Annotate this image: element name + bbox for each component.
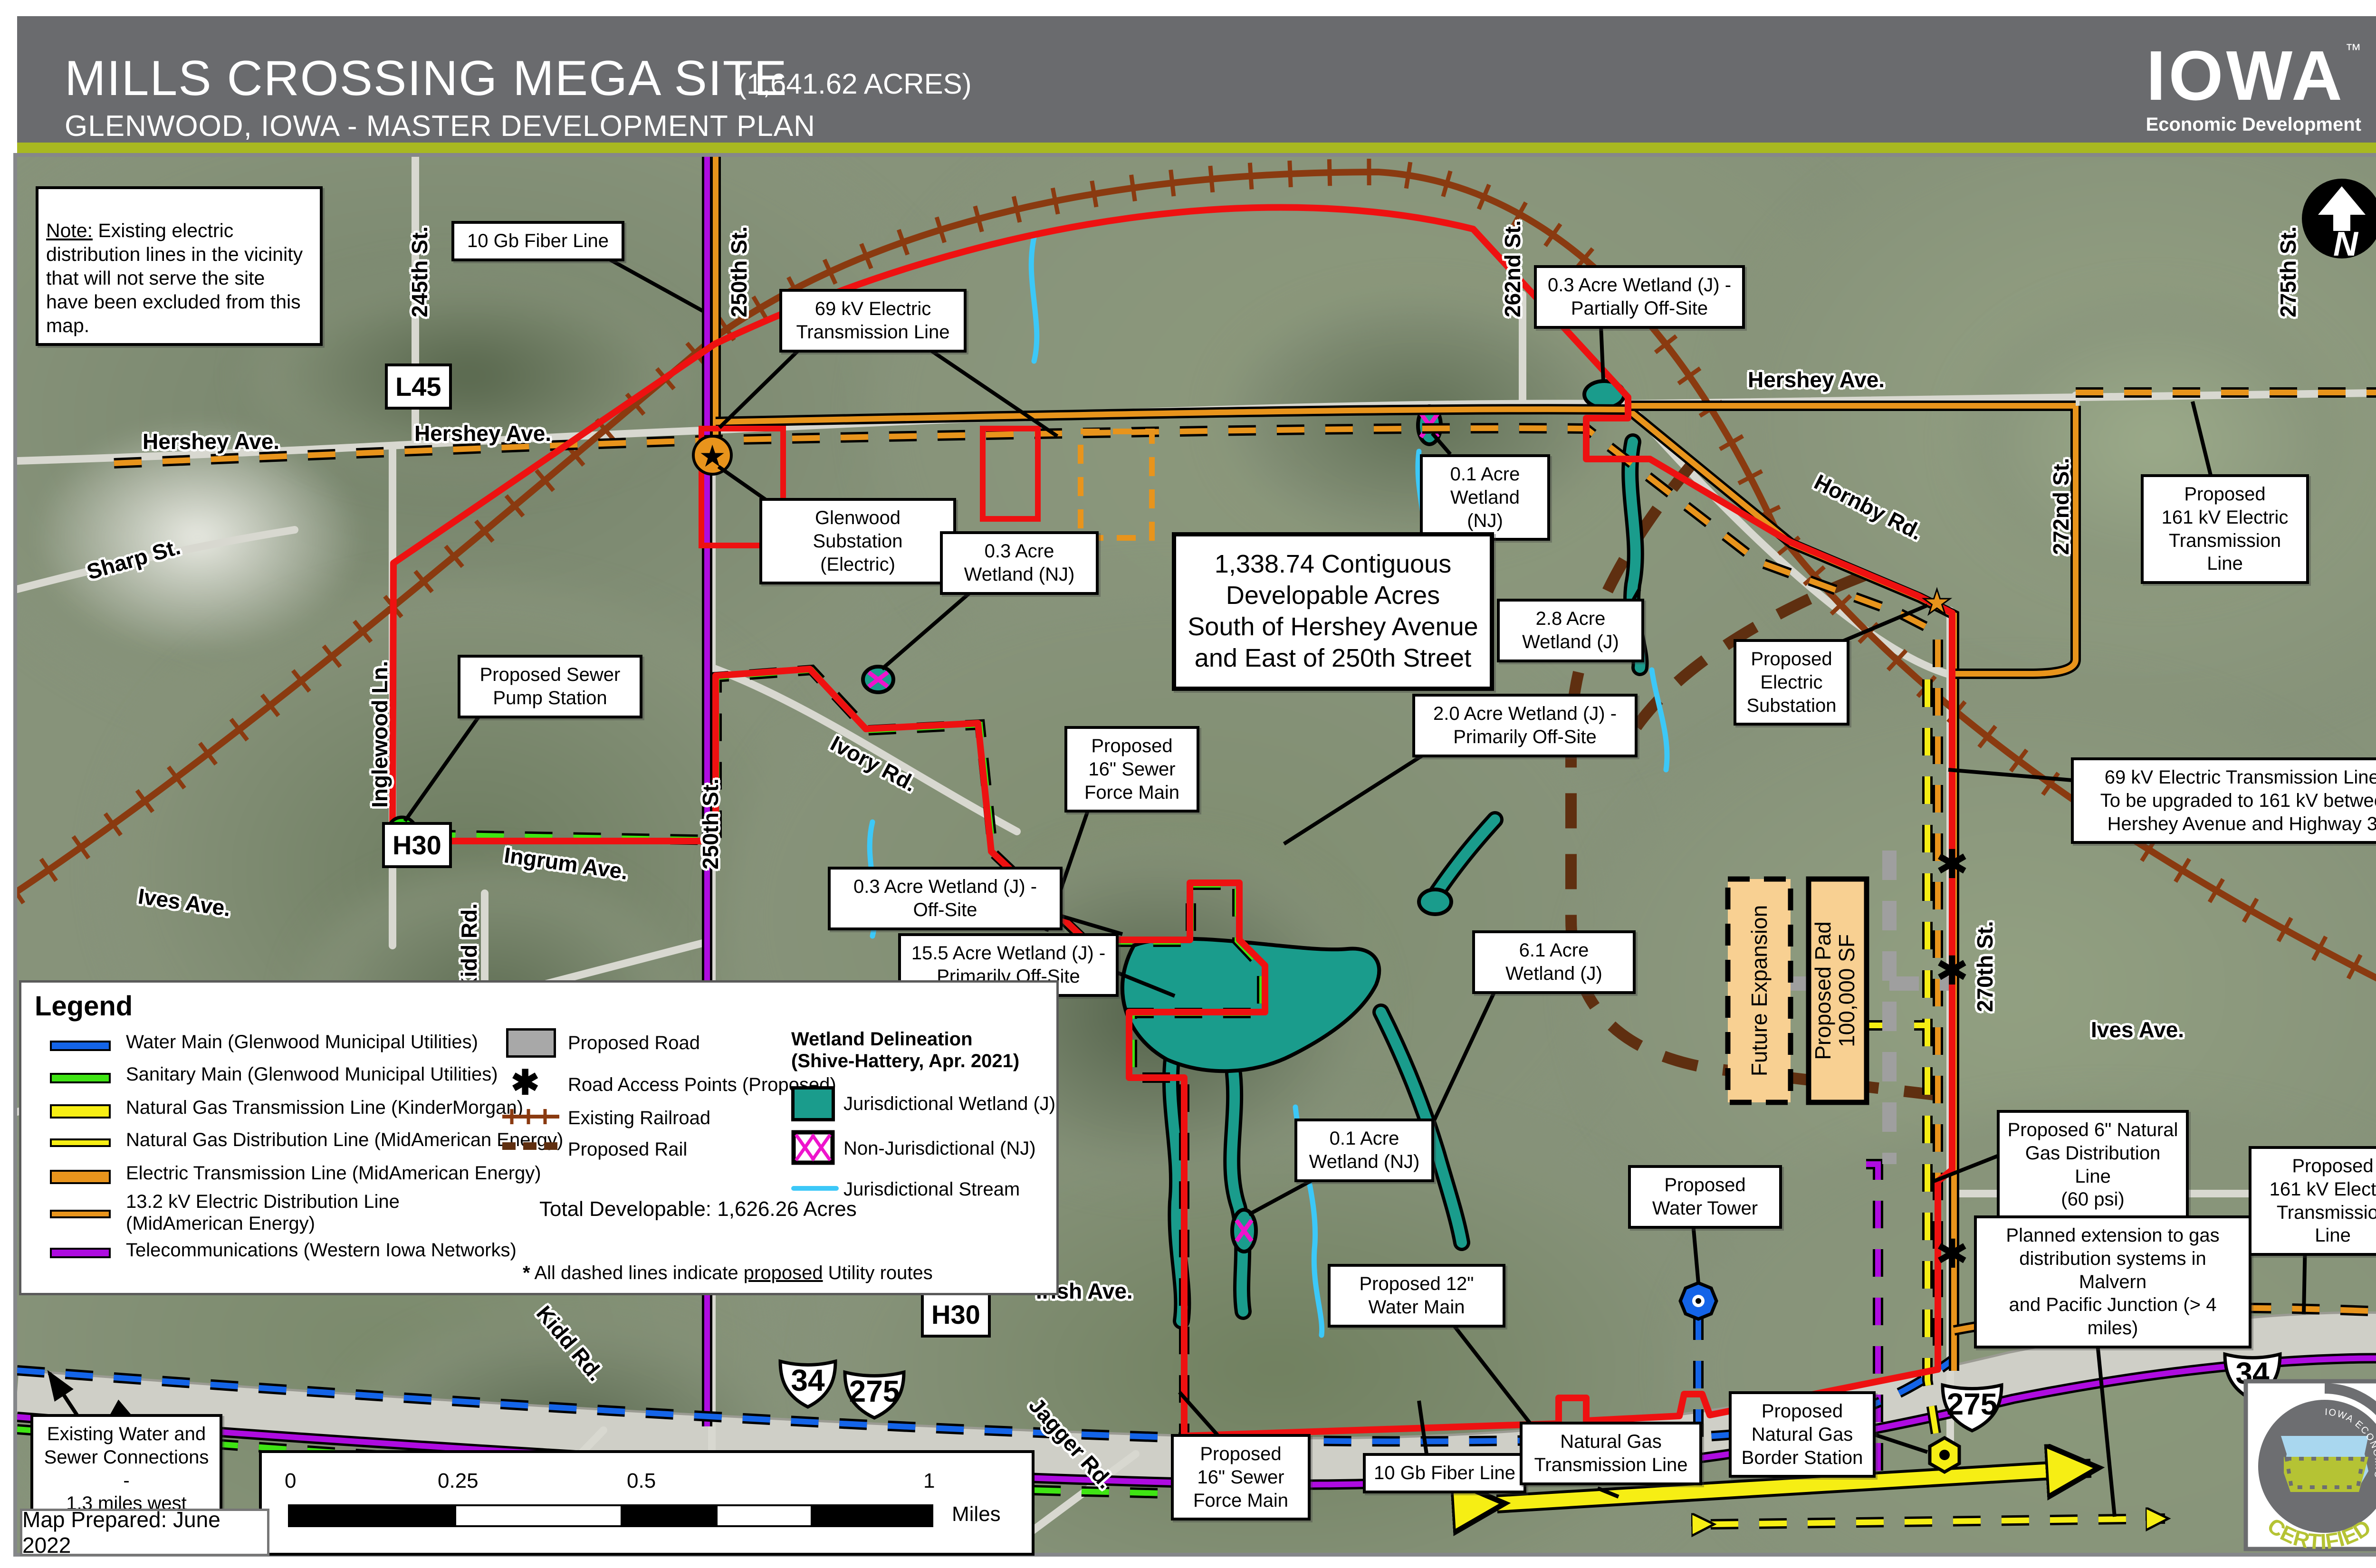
legend: Legend Water Main (Glenwood Municipal Ut…: [19, 980, 1059, 1295]
iowa-wordmark: IOWA: [2146, 37, 2345, 115]
gas-distribution-swatch: [50, 1138, 111, 1147]
legend-item: Natural Gas Transmission Line (KinderMor…: [126, 1097, 523, 1119]
scale-bar: 0 0.25 0.5 1 Miles: [259, 1450, 1035, 1556]
page-subtitle: GLENWOOD, IOWA - MASTER DEVELOPMENT PLAN: [65, 109, 815, 143]
brand-tagline: Economic Development: [2146, 114, 2361, 135]
iowa-economic-development-logo: IOWA™ Economic Development: [2146, 41, 2361, 135]
site-acreage: (1,641.62 ACRES): [737, 67, 972, 100]
footnote-post: Utility routes: [823, 1262, 933, 1283]
callout-water-tower: Proposed Water Tower: [1628, 1165, 1782, 1229]
gas-transmission-swatch: [50, 1104, 111, 1119]
callout-20-wetland: 2.0 Acre Wetland (J) - Primarily Off-Sit…: [1412, 694, 1638, 757]
tree-cluster: [1229, 299, 1609, 537]
legend-item: Proposed Road: [568, 1032, 700, 1054]
railroad-swatch: [502, 1107, 559, 1126]
telecom-swatch: [50, 1248, 111, 1258]
road-label-270th: 270th St.: [1972, 921, 1998, 1012]
proposed-road-swatch: [506, 1028, 556, 1058]
scale-seg: [716, 1504, 814, 1527]
road-access-swatch: ✱: [511, 1062, 539, 1102]
road-label-250th-mid: 250th St.: [698, 778, 723, 870]
callout-28-wetland: 2.8 Acre Wetland (J): [1497, 599, 1644, 662]
legend-item: Sanitary Main (Glenwood Municipal Utilit…: [126, 1063, 498, 1085]
legend-item: Jurisdictional Wetland (J): [843, 1093, 1055, 1115]
legend-item: Telecommunications (Western Iowa Network…: [126, 1239, 517, 1261]
callout-03-nj: 0.3 Acre Wetland (NJ): [940, 531, 1099, 595]
callout-glenwood-substation: Glenwood Substation (Electric): [759, 498, 956, 584]
footnote-pre: All dashed lines indicate: [530, 1262, 744, 1283]
callout-gas-extension: Planned extension to gas distribution sy…: [1974, 1215, 2251, 1348]
electric-distribution-swatch: [50, 1210, 111, 1218]
road-label-262nd: 262nd St.: [1500, 220, 1525, 317]
legend-item: Non-Jurisdictional (NJ): [843, 1138, 1036, 1159]
page-title: MILLS CROSSING MEGA SITE: [65, 50, 788, 107]
header-bar: MILLS CROSSING MEGA SITE (1,641.62 ACRES…: [17, 16, 2376, 143]
callout-61-wetland: 6.1 Acre Wetland (J): [1472, 930, 1636, 994]
road-label-272nd: 272nd St.: [2048, 458, 2074, 555]
footnote-underlined: proposed: [744, 1262, 823, 1283]
road-label-hershey-e: Hershey Ave.: [1748, 367, 1885, 392]
legend-item: Existing Railroad: [568, 1107, 710, 1129]
callout-01-nj-top: 0.1 Acre Wetland (NJ): [1420, 454, 1550, 541]
scale-tick: 0.25: [438, 1469, 479, 1493]
scale-seg: [454, 1504, 624, 1527]
scale-tick: 0: [285, 1469, 296, 1493]
footnote-star: *: [523, 1262, 530, 1283]
sign-L45: L45: [385, 363, 452, 410]
callout-03-offsite: 0.3 Acre Wetland (J) - Off-Site: [828, 867, 1063, 930]
road-label-kidd: Kidd Rd.: [456, 903, 482, 993]
sanitary-swatch: [50, 1073, 111, 1083]
legend-item: Natural Gas Distribution Line (MidAmeric…: [126, 1129, 563, 1151]
road-label-250th-top: 250th St.: [726, 226, 752, 317]
callout-69kv-upgrade: 69 kV Electric Transmission Line - To be…: [2071, 757, 2376, 844]
callout-69kv: 69 kV Electric Transmission Line: [779, 289, 967, 353]
road-label-hershey-c: Hershey Ave.: [414, 421, 551, 446]
road-label-275th: 275th St.: [2275, 226, 2301, 317]
proposed-rail-swatch: [502, 1140, 559, 1152]
map-prepared-box: Map Prepared: June 2022: [20, 1509, 269, 1556]
legend-item: Jurisdictional Stream: [843, 1178, 1020, 1200]
callout-12in-water: Proposed 12" Water Main: [1328, 1264, 1505, 1328]
callout-16in-sewer-south: Proposed 16" Sewer Force Main: [1171, 1434, 1311, 1520]
legend-item: 13.2 kV Electric Distribution Line (MidA…: [126, 1191, 400, 1234]
scale-tick: 1: [923, 1469, 935, 1493]
callout-03-partial: 0.3 Acre Wetland (J) - Partially Off-Sit…: [1534, 265, 1745, 329]
callout-fiber-south: 10 Gb Fiber Line: [1363, 1453, 1526, 1493]
callout-161kv-north: Proposed 161 kV Electric Transmission Li…: [2141, 474, 2309, 584]
header-accent-stripe: [17, 143, 2376, 157]
callout-161kv-south: Proposed 161 kV Electric Transmission Li…: [2249, 1146, 2376, 1256]
road-label-245th: 245th St.: [407, 226, 432, 317]
stream-swatch: [791, 1186, 839, 1191]
water-main-swatch: [50, 1041, 111, 1051]
callout-developable-acres: 1,338.74 Contiguous Developable Acres So…: [1172, 532, 1494, 691]
callout-proposed-substation: Proposed Electric Substation: [1734, 639, 1849, 726]
note-label: Note:: [46, 220, 93, 241]
road-label-inglewood: Inglewood Ln.: [367, 661, 393, 808]
legend-item: Proposed Rail: [568, 1138, 687, 1160]
total-developable: Total Developable: 1,626.26 Acres: [539, 1197, 857, 1222]
page: MILLS CROSSING MEGA SITE (1,641.62 ACRES…: [0, 0, 2376, 1568]
road-label-ives-e: Ives Ave.: [2091, 1017, 2184, 1042]
callout-01-nj-bottom: 0.1 Acre Wetland (NJ): [1294, 1119, 1434, 1182]
non-jurisdictional-swatch: [791, 1130, 835, 1165]
legend-title: Legend: [35, 990, 1056, 1022]
scale-seg: [288, 1504, 458, 1527]
callout-fiber-top: 10 Gb Fiber Line: [451, 221, 624, 261]
callout-border-station: Proposed Natural Gas Border Station: [1729, 1391, 1876, 1478]
sign-H30-west: H30: [382, 822, 452, 868]
scale-seg: [621, 1504, 719, 1527]
road-label-hershey-w: Hershey Ave.: [143, 429, 279, 454]
scale-unit: Miles: [952, 1502, 1001, 1526]
callout-gas-transmission: Natural Gas Transmission Line: [1520, 1422, 1702, 1485]
legend-item: Electric Transmission Line (MidAmerican …: [126, 1162, 541, 1184]
callout-pump-station: Proposed Sewer Pump Station: [458, 655, 642, 718]
electric-transmission-swatch: [50, 1170, 111, 1184]
note-box: Note: Existing electric distribution lin…: [36, 186, 323, 346]
callout-6in-gas: Proposed 6" Natural Gas Distribution Lin…: [1997, 1110, 2189, 1220]
wetland-heading: Wetland Delineation (Shive-Hattery, Apr.…: [791, 1028, 1019, 1072]
scale-tick: 0.5: [627, 1469, 656, 1493]
scale-seg: [811, 1504, 933, 1527]
legend-footnote: * All dashed lines indicate proposed Uti…: [523, 1240, 933, 1284]
sign-H30-south: H30: [921, 1291, 991, 1338]
callout-16in-sewer: Proposed 16" Sewer Force Main: [1064, 726, 1199, 813]
legend-item: Water Main (Glenwood Municipal Utilities…: [126, 1031, 478, 1053]
jurisdictional-wetland-swatch: [791, 1086, 835, 1121]
